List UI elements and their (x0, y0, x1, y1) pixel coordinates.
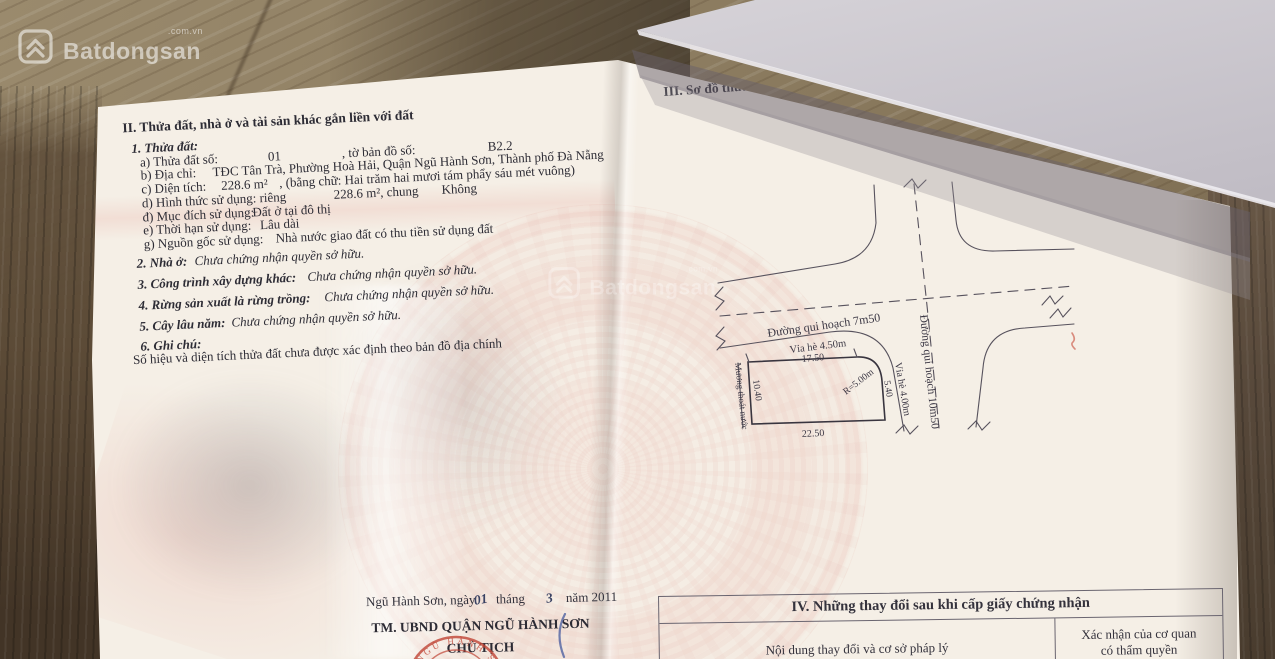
wood-left-strip (0, 86, 102, 659)
break-mark (1050, 308, 1071, 318)
dim-bottom: 22.50 (802, 428, 825, 440)
road-centerline-h (720, 286, 1074, 316)
place-date-prefix: Ngũ Hành Sơn, ngày (366, 592, 476, 610)
break-mark (715, 287, 724, 310)
item3-label: 3. Công trình xây dựng khác: (137, 270, 296, 293)
watermark-center: .com.vn Batdongsan (548, 264, 716, 301)
break-mark (1042, 296, 1063, 305)
section4-col1-header: Nội dung thay đổi và cơ sở pháp lý (659, 618, 1055, 659)
road-edge (976, 324, 1074, 427)
photo-canvas: II. Thửa đất, nhà ở và tài sản khác gắn … (0, 0, 1275, 659)
watermark-suffix: .com.vn (686, 264, 718, 273)
break-mark (896, 425, 918, 434)
handwritten-day: 01 (473, 591, 489, 609)
item2-value: Chưa chứng nhận quyền sở hữu. (194, 246, 364, 270)
item5-label: 5. Cây lâu năm: (139, 315, 226, 335)
item3-value: Chưa chứng nhận quyền sở hữu. (307, 261, 477, 285)
section4-col2-header: Xác nhận của cơ quan có thẩm quyền (1054, 616, 1223, 659)
drain-label: Mương thoát nước (733, 362, 750, 430)
col2-line2: có thẩm quyền (1055, 641, 1223, 659)
item4-label: 4. Rừng sản xuất là rừng trồng: (138, 290, 311, 314)
pen-signature-stroke (552, 612, 578, 659)
dim-left: 10.40 (750, 379, 763, 402)
watermark-brand: Batdongsan (63, 38, 201, 64)
batdongsan-logo-icon (548, 264, 581, 301)
watermark-brand: Batdongsan (589, 275, 716, 299)
red-stamp: NGŨ HÀNH SƠN (398, 634, 518, 659)
road-edge (718, 185, 876, 283)
watermark-topleft: .com.vn Batdongsan (18, 26, 201, 66)
section-2-block: II. Thửa đất, nhà ở và tài sản khác gắn … (108, 93, 681, 380)
handwritten-month: 3 (545, 590, 554, 607)
year-label: năm 2011 (566, 589, 617, 606)
dim-top: 17.50 (801, 352, 824, 365)
dim-radius: R=5.00m (842, 367, 877, 397)
road-v-label: Đường qui hoạch 10m50 (917, 314, 941, 430)
sidewalk-right-label: Vỉa hè 4.00m (892, 362, 912, 417)
watermark-suffix: .com.vn (168, 26, 203, 36)
break-mark (716, 327, 725, 350)
section4-table: IV. Những thay đổi sau khi cấp giấy chứn… (658, 588, 1224, 659)
item4-value: Chưa chứng nhận quyền sở hữu. (324, 282, 494, 306)
road-h-label: Đường qui hoạch 7m50 (766, 310, 881, 340)
break-mark (968, 421, 990, 430)
red-pencil-mark (1072, 333, 1075, 349)
parcel-outline (748, 357, 885, 424)
section4-body: Nội dung thay đổi và cơ sở pháp lý Xác n… (659, 616, 1223, 659)
stamp-text: NGŨ HÀNH SƠN (414, 636, 506, 659)
item2-label: 2. Nhà ở: (136, 254, 187, 272)
month-label: tháng (496, 591, 525, 608)
batdongsan-logo-icon (18, 26, 54, 66)
